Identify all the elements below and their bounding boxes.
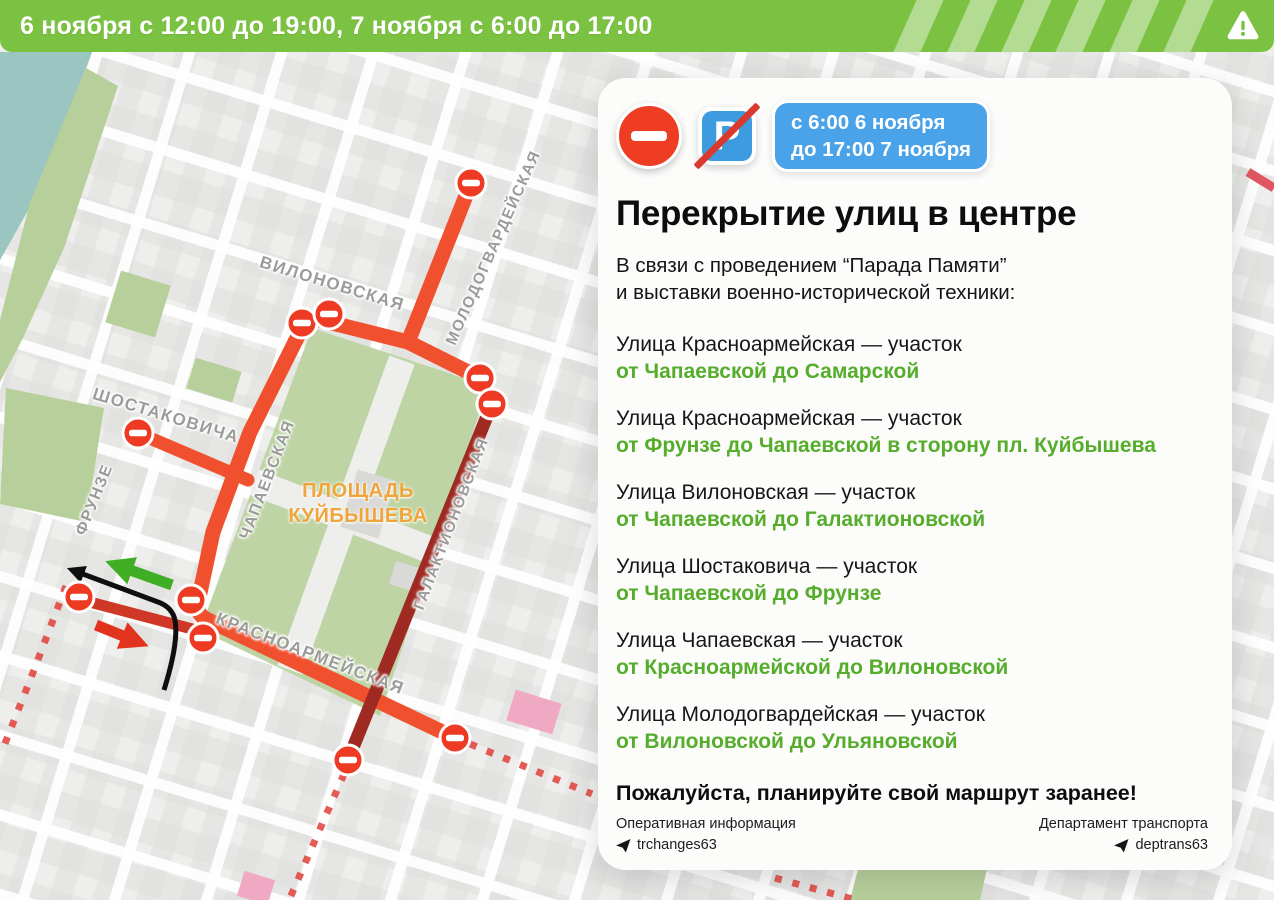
warning-triangle-icon bbox=[1226, 9, 1260, 43]
closure-street: Улица Вилоновская — участок bbox=[616, 480, 1208, 506]
footer-left: Оперативная информация trchanges63 bbox=[616, 814, 796, 856]
no-entry-icon bbox=[64, 582, 94, 612]
no-parking-icon: P bbox=[698, 107, 756, 165]
closure-item: Улица Красноармейская — участок от Чапае… bbox=[616, 332, 1208, 385]
header-banner: 6 ноября с 12:00 до 19:00, 7 ноября с 6:… bbox=[0, 0, 1274, 52]
header-dates: 6 ноября с 12:00 до 19:00, 7 ноября с 6:… bbox=[0, 12, 653, 41]
closed-direction-arrow bbox=[96, 625, 138, 642]
telegram-handle-trchanges63[interactable]: trchanges63 bbox=[616, 835, 796, 856]
infographic: ВИЛОНОВСКАЯ МОЛОДОГВАРДЕЙСКАЯ ШОСТАКОВИЧ… bbox=[0, 0, 1274, 900]
closure-section: от Фрунзе до Чапаевской в сторону пл. Ку… bbox=[616, 432, 1208, 459]
card-title: Перекрытие улиц в центре bbox=[616, 194, 1208, 234]
closure-item: Улица Чапаевская — участок от Красноарме… bbox=[616, 628, 1208, 681]
pink-building bbox=[506, 690, 561, 735]
telegram-plane-icon bbox=[616, 839, 631, 853]
park-block bbox=[186, 358, 241, 403]
closure-section: от Чапаевской до Фрунзе bbox=[616, 580, 1208, 607]
telegram-plane-icon bbox=[1114, 839, 1129, 853]
closure-street: Улица Красноармейская — участок bbox=[616, 406, 1208, 432]
no-entry-icon bbox=[287, 308, 317, 338]
closure-item: Улица Вилоновская — участок от Чапаевско… bbox=[616, 480, 1208, 533]
closure-street: Улица Красноармейская — участок bbox=[616, 332, 1208, 358]
handle-text: deptrans63 bbox=[1135, 835, 1208, 856]
closure-section: от Чапаевской до Галактионовской bbox=[616, 506, 1208, 533]
handle-text: trchanges63 bbox=[637, 835, 717, 856]
header-stripes bbox=[905, 0, 1202, 52]
closure-item: Улица Красноармейская — участок от Фрунз… bbox=[616, 406, 1208, 459]
no-entry-icon bbox=[616, 103, 682, 169]
square-label-line1: ПЛОЩАДЬ bbox=[288, 479, 427, 504]
park-block bbox=[105, 271, 171, 338]
closure-section: от Вилоновской до Ульяновской bbox=[616, 728, 1208, 755]
footer-left-label: Оперативная информация bbox=[616, 814, 796, 835]
no-entry-icon bbox=[314, 299, 344, 329]
closure-section: от Чапаевской до Самарской bbox=[616, 358, 1208, 385]
no-entry-icon bbox=[123, 418, 153, 448]
pink-building bbox=[237, 871, 275, 900]
edge-road bbox=[1248, 172, 1274, 188]
no-entry-icon bbox=[440, 723, 470, 753]
closure-street: Улица Чапаевская — участок bbox=[616, 628, 1208, 654]
kuybyshev-square-label: ПЛОЩАДЬ КУЙБЫШЕВА bbox=[288, 479, 427, 529]
allowed-direction-arrow bbox=[116, 565, 172, 585]
card-footer: Оперативная информация trchanges63 Депар… bbox=[616, 814, 1208, 856]
footer-right: Департамент транспорта deptrans63 bbox=[1039, 814, 1208, 856]
sign-icons-row: P с 6:00 6 ноября до 17:00 7 ноября bbox=[616, 104, 1208, 168]
badge-line2: до 17:00 7 ноября bbox=[791, 136, 971, 163]
no-entry-icon bbox=[477, 389, 507, 419]
closure-item: Улица Шостаковича — участок от Чапаевско… bbox=[616, 554, 1208, 607]
time-range-badge: с 6:00 6 ноября до 17:00 7 ноября bbox=[772, 100, 990, 172]
intro-line1: В связи с проведением “Парада Памяти” bbox=[616, 252, 1208, 279]
footer-right-label: Департамент транспорта bbox=[1039, 814, 1208, 835]
no-entry-icon bbox=[176, 585, 206, 615]
intro-line2: и выставки военно-исторической техники: bbox=[616, 279, 1208, 306]
intro-text: В связи с проведением “Парада Памяти” и … bbox=[616, 252, 1208, 306]
announcement-card: P с 6:00 6 ноября до 17:00 7 ноября Пере… bbox=[598, 78, 1232, 870]
badge-line1: с 6:00 6 ноября bbox=[791, 109, 971, 136]
closure-street: Улица Молодогвардейская — участок bbox=[616, 702, 1208, 728]
square-label-line2: КУЙБЫШЕВА bbox=[288, 504, 427, 529]
closure-section: от Красноармейской до Вилоновской bbox=[616, 654, 1208, 681]
telegram-handle-deptrans63[interactable]: deptrans63 bbox=[1039, 835, 1208, 856]
closure-item: Улица Молодогвардейская — участок от Вил… bbox=[616, 702, 1208, 755]
closing-note: Пожалуйста, планируйте свой маршрут зара… bbox=[616, 781, 1208, 806]
closure-street: Улица Шостаковича — участок bbox=[616, 554, 1208, 580]
no-entry-icon bbox=[456, 168, 486, 198]
no-entry-icon bbox=[333, 745, 363, 775]
